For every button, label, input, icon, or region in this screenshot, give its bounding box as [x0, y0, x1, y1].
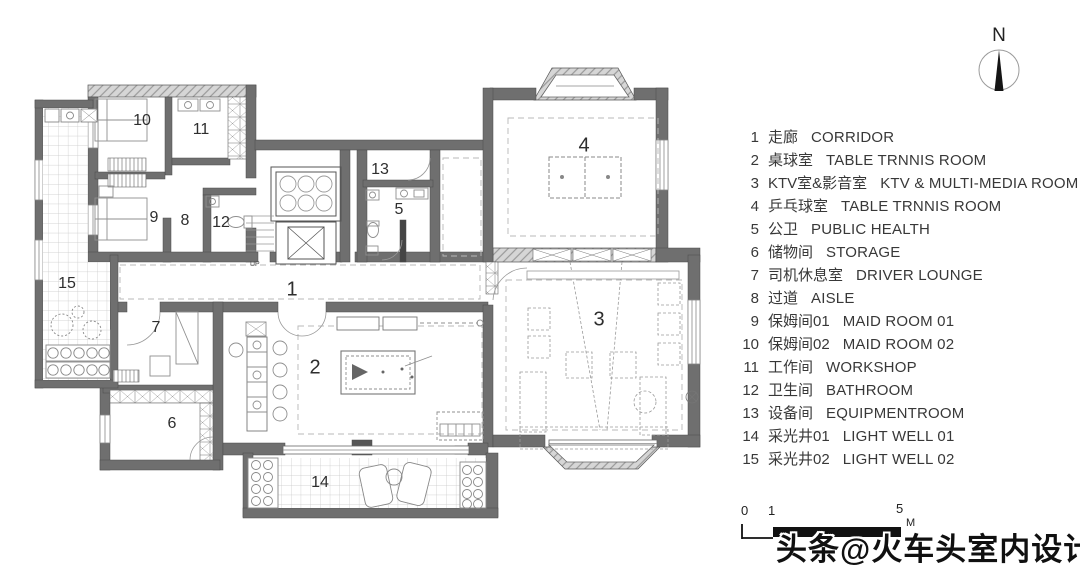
legend-name-en: LIGHT WELL 01: [843, 425, 955, 448]
legend-name-zh: 司机休息室: [768, 264, 843, 287]
legend-name-en: TABLE TRNNIS ROOM: [841, 195, 1001, 218]
legend-number: 10: [740, 333, 759, 356]
legend-name-en: AISLE: [811, 287, 855, 310]
legend-item-10: 10保姆间02MAID ROOM 02: [740, 333, 1079, 356]
legend-number: 11: [740, 356, 759, 379]
hatched-walls: [88, 68, 660, 469]
legend-item-7: 7司机休息室DRIVER LOUNGE: [740, 264, 1079, 287]
legend-number: 7: [740, 264, 759, 287]
legend-number: 14: [740, 425, 759, 448]
legend-name-zh: 桌球室: [768, 149, 813, 172]
legend-item-4: 4乒乓球室TABLE TRNNIS ROOM: [740, 195, 1079, 218]
pingpong-table: [549, 157, 621, 198]
legend-name-zh: 设备间: [768, 402, 813, 425]
legend-name-en: BATHROOM: [826, 379, 913, 402]
legend-item-13: 13设备间EQUIPMENTROOM: [740, 402, 1079, 425]
elevator-core: [271, 167, 341, 264]
legend-number: 2: [740, 149, 759, 172]
compass-icon: [977, 46, 1021, 94]
legend-name-en: MAID ROOM 02: [843, 333, 955, 356]
legend-name-en: LIGHT WELL 02: [843, 448, 955, 471]
legend-item-12: 12卫生间BATHROOM: [740, 379, 1079, 402]
legend-item-6: 6储物间STORAGE: [740, 241, 1079, 264]
legend-name-zh: 乒乓球室: [768, 195, 828, 218]
legend-item-11: 11工作间WORKSHOP: [740, 356, 1079, 379]
legend-name-en: TABLE TRNNIS ROOM: [826, 149, 986, 172]
legend-number: 12: [740, 379, 759, 402]
legend-number: 6: [740, 241, 759, 264]
room-legend: 1走廊CORRIDOR2桌球室TABLE TRNNIS ROOM3KTV室&影音…: [740, 126, 1079, 471]
legend-item-8: 8过道AISLE: [740, 287, 1079, 310]
floorplan-page: 123456789101112131415 UP 1走廊CORRIDOR2桌球室…: [0, 0, 1080, 575]
legend-item-5: 5公卫PUBLIC HEALTH: [740, 218, 1079, 241]
ktv-console: [527, 271, 698, 403]
floor-plan-drawing: [0, 0, 720, 575]
windows: [35, 75, 700, 462]
legend-name-en: EQUIPMENTROOM: [826, 402, 964, 425]
legend-name-zh: 走廊: [768, 126, 798, 149]
legend-number: 1: [740, 126, 759, 149]
legend-item-2: 2桌球室TABLE TRNNIS ROOM: [740, 149, 1079, 172]
legend-name-en: WORKSHOP: [826, 356, 917, 379]
legend-name-en: STORAGE: [826, 241, 900, 264]
legend-number: 13: [740, 402, 759, 425]
legend-name-en: DRIVER LOUNGE: [856, 264, 983, 287]
legend-name-en: PUBLIC HEALTH: [811, 218, 930, 241]
legend-name-zh: 过道: [768, 287, 798, 310]
north-compass: N: [977, 26, 1021, 99]
legend-number: 9: [740, 310, 759, 333]
legend-name-zh: KTV室&影音室: [768, 172, 867, 195]
legend-name-en: MAID ROOM 01: [843, 310, 955, 333]
legend-name-zh: 保姆间02: [768, 333, 830, 356]
legend-item-14: 14采光井01LIGHT WELL 01: [740, 425, 1079, 448]
legend-number: 3: [740, 172, 759, 195]
legend-name-zh: 储物间: [768, 241, 813, 264]
legend-name-zh: 卫生间: [768, 379, 813, 402]
legend-item-1: 1走廊CORRIDOR: [740, 126, 1079, 149]
north-label: N: [977, 26, 1021, 46]
watermark: 头条@火车头室内设计: [776, 524, 1080, 569]
legend-name-zh: 公卫: [768, 218, 798, 241]
legend-name-en: KTV & MULTI-MEDIA ROOM: [880, 172, 1078, 195]
billiards-furniture: [229, 317, 483, 440]
legend-name-zh: 采光井02: [768, 448, 830, 471]
legend-number: 15: [740, 448, 759, 471]
legend-item-9: 9保姆间01MAID ROOM 01: [740, 310, 1079, 333]
legend-number: 8: [740, 287, 759, 310]
legend-name-zh: 保姆间01: [768, 310, 830, 333]
legend-number: 5: [740, 218, 759, 241]
legend-name-zh: 采光井01: [768, 425, 830, 448]
legend-name-en: CORRIDOR: [811, 126, 894, 149]
legend-number: 4: [740, 195, 759, 218]
legend-item-15: 15采光井02LIGHT WELL 02: [740, 448, 1079, 471]
stairs-up-label: UP: [250, 261, 260, 268]
legend-name-zh: 工作间: [768, 356, 813, 379]
legend-item-3: 3KTV室&影音室KTV & MULTI-MEDIA ROOM: [740, 172, 1079, 195]
ktv-furniture: [520, 262, 680, 449]
